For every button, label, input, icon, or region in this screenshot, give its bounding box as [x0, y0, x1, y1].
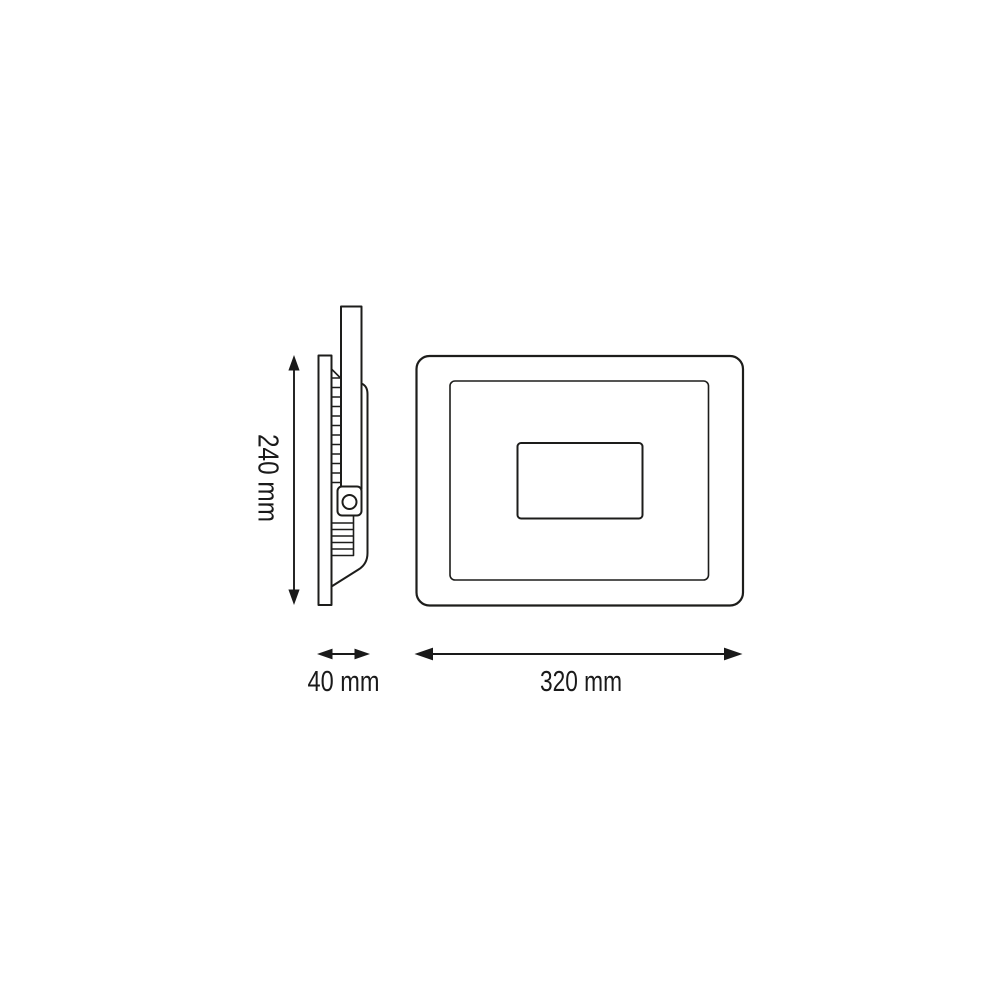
height-dimension-label: 240 mm — [252, 434, 284, 522]
pivot-screw-icon — [343, 495, 357, 509]
arrow-left-icon — [415, 648, 434, 661]
dimension-depth: 40 mm — [308, 649, 380, 698]
front-view — [417, 356, 744, 606]
arrow-right-icon — [724, 648, 743, 661]
heatsink-fins-lower — [332, 516, 354, 556]
floodlight-dimension-diagram: 240 mm 40 mm 320 mm — [0, 0, 1000, 1000]
heatsink-top-bevel — [332, 369, 342, 379]
mounting-bracket-arm — [341, 307, 362, 490]
arrow-up-icon — [288, 355, 299, 371]
outer-housing-frame — [417, 356, 744, 606]
width-dimension-label: 320 mm — [540, 666, 622, 698]
arrow-right-icon — [355, 649, 371, 660]
front-plate — [319, 356, 332, 606]
arrow-left-icon — [317, 649, 333, 660]
diagram-canvas: 240 mm 40 mm 320 mm — [0, 0, 1000, 1000]
side-view — [319, 307, 368, 606]
dimension-height: 240 mm — [252, 355, 300, 605]
depth-dimension-label: 40 mm — [308, 666, 380, 698]
dimension-width: 320 mm — [415, 648, 743, 698]
arrow-down-icon — [288, 590, 299, 606]
heatsink-fins-upper — [332, 378, 342, 483]
